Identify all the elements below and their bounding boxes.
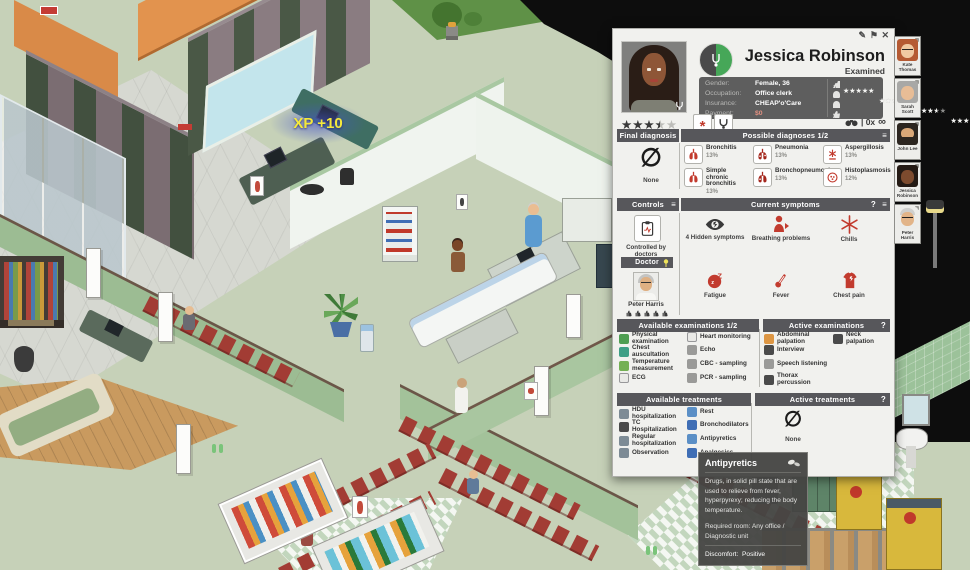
- close-icon[interactable]: ✕: [881, 31, 889, 40]
- glasses-icon: [902, 49, 913, 53]
- treatment-item[interactable]: Bronchodilators: [687, 420, 749, 430]
- header-label: Doctor: [635, 259, 659, 266]
- header-label: Active examinations: [789, 321, 864, 330]
- thumb-up-icon: [662, 310, 669, 317]
- binoculars-icon: [845, 118, 858, 127]
- door: [566, 294, 581, 338]
- edit-icon[interactable]: ✎: [858, 31, 866, 40]
- water-cooler: [360, 324, 374, 352]
- treatment-tooltip: Antipyretics Drugs, in solid pill state …: [698, 452, 808, 566]
- comfort-icon: [833, 91, 840, 98]
- game-viewport[interactable]: XP +10 ✎ ⚑ ✕ Jessica Robinson Examined G…: [0, 0, 970, 570]
- help-icon[interactable]: ?: [871, 200, 876, 209]
- diagnosis-item[interactable]: Bronchopneumonia13%: [753, 168, 821, 187]
- flowers: [448, 22, 456, 27]
- final-diagnosis-none-glyph: ∅: [623, 143, 679, 173]
- door: [176, 424, 191, 474]
- tooltip-discomfort-label: Discomfort:: [705, 551, 738, 558]
- portrait-lips: [650, 79, 658, 82]
- beard: [902, 137, 913, 143]
- clipboard-icon: [639, 220, 656, 237]
- examination-label: Thorax percussion: [777, 373, 830, 387]
- divider: [705, 472, 801, 473]
- speech-bubble-icon: [764, 345, 774, 355]
- rating-stars: ★★★★★★★★★★: [843, 88, 874, 95]
- queue-portrait: [897, 165, 918, 187]
- thorax-icon: [764, 375, 774, 385]
- queue-portrait: [897, 123, 918, 145]
- diagnosis-probability: 13%: [706, 189, 750, 195]
- header-label: Final diagnosis: [620, 131, 677, 140]
- queue-patient-card[interactable]: Peter Harris: [894, 204, 921, 244]
- info-value-payment: $0: [755, 110, 763, 117]
- available-treatments-header: Available treatments: [617, 393, 751, 406]
- pin-icon[interactable]: [663, 259, 669, 267]
- info-value: Female, 36: [755, 80, 790, 87]
- books: [4, 262, 58, 320]
- door: [86, 248, 101, 298]
- fatigue-icon: Zz: [706, 271, 725, 290]
- inhaler-icon: [687, 420, 697, 430]
- examination-label: Chest auscultation: [632, 345, 683, 359]
- syringe-icon: [687, 373, 697, 383]
- list-icon[interactable]: ≡: [882, 131, 887, 140]
- info-value: CHEAP'o'Care: [755, 100, 801, 107]
- diagnosis-item[interactable]: Pneumonia13%: [753, 145, 821, 164]
- queue-face: [901, 86, 914, 100]
- active-examination-item[interactable]: Interview: [764, 345, 830, 355]
- header-label: Controls: [632, 200, 664, 209]
- info-divider: [827, 79, 828, 117]
- diagnosis-item[interactable]: Histoplasmosis12%: [823, 168, 889, 187]
- ecg-monitor-icon: [619, 373, 629, 383]
- breathing-icon: [771, 215, 791, 233]
- mirror: [902, 394, 930, 426]
- controls-mode-label: Controlled by doctors: [615, 244, 677, 258]
- lungs-icon: [684, 168, 703, 187]
- staff-head: [457, 378, 467, 388]
- person-head: [469, 470, 478, 479]
- info-value: Office clerk: [755, 90, 792, 97]
- active-treatments-none-label: None: [763, 436, 823, 443]
- diagnosis-name: Aspergillosis: [845, 145, 884, 152]
- symptom-label: Chest pain: [833, 293, 865, 300]
- planter-flowers: [446, 26, 458, 40]
- street-lamp-head: [926, 200, 944, 213]
- glasses-icon: [902, 217, 913, 221]
- queue-portrait: [897, 39, 918, 61]
- examination-label: ECG: [632, 375, 646, 382]
- header-label: Available treatments: [646, 395, 722, 404]
- treatment-item[interactable]: Observation: [619, 448, 685, 458]
- doctor-portrait[interactable]: [633, 272, 659, 301]
- patient-figure: [448, 240, 468, 276]
- examination-item[interactable]: Chest auscultation: [619, 345, 683, 359]
- portrait-eyes: [647, 68, 651, 71]
- doctor-subheader: Doctor: [621, 257, 673, 268]
- treatment-item[interactable]: Regular hospitalization: [619, 434, 685, 448]
- treatment-label: TC Hospitalization: [632, 420, 685, 434]
- staff-coat: [455, 387, 468, 413]
- thumb-up-icon: [653, 310, 660, 317]
- help-icon[interactable]: ?: [881, 395, 886, 404]
- staff-figure: [454, 378, 470, 414]
- treatment-item[interactable]: Antipyretics: [687, 434, 749, 444]
- queue-patient-card[interactable]: Kate Thomas: [894, 36, 921, 76]
- treatment-item[interactable]: Rest: [687, 407, 749, 417]
- diagnosis-item[interactable]: Aspergillosis13%: [823, 145, 889, 164]
- diagnosis-name: Bronchitis: [706, 145, 737, 152]
- active-examination-item[interactable]: Thorax percussion: [764, 373, 830, 387]
- active-examination-item[interactable]: Neck palpation: [833, 332, 889, 346]
- diagnosis-probability: 12%: [845, 176, 891, 182]
- pills-icon: [787, 458, 801, 468]
- possible-diagnoses-header: Possible diagnoses 1/2 ≡: [681, 129, 890, 142]
- snowflake-icon: [840, 215, 859, 234]
- treatment-label: Observation: [632, 450, 669, 457]
- symptom-label: Fatigue: [704, 293, 726, 300]
- queue-patient-card[interactable]: Jessica Robinson: [894, 162, 921, 202]
- symptom-label: Chills: [841, 237, 858, 244]
- patient-card: ✎ ⚑ ✕ Jessica Robinson Examined Gender: …: [612, 28, 895, 477]
- doctor-glasses: [641, 282, 651, 286]
- thumb-up-icon: [635, 310, 642, 317]
- tooltip-body: Drugs, in solid pill state that are used…: [705, 477, 801, 515]
- doctor-rating-thumbs: [621, 310, 673, 317]
- restroom-floor-sign: [212, 444, 216, 453]
- final-diagnosis-header: Final diagnosis: [617, 129, 679, 142]
- header-label: Available examinations 1/2: [639, 321, 738, 330]
- seated-person: [466, 470, 480, 496]
- treatment-item[interactable]: HDU hospitalization: [619, 407, 685, 421]
- person-torso: [183, 314, 195, 330]
- examination-label: Neck palpation: [846, 332, 889, 346]
- office-chair: [340, 168, 354, 185]
- symptom-item: Fever: [749, 271, 813, 300]
- examination-label: Interview: [777, 347, 804, 354]
- patient-head: [452, 240, 463, 251]
- symptom-item: Chills: [817, 215, 881, 244]
- pills-icon: [687, 448, 697, 458]
- queue-patient-name: Peter Harris: [895, 230, 920, 241]
- section-divider: [679, 213, 680, 315]
- thumb-up-icon: [626, 310, 633, 317]
- list-icon[interactable]: ≡: [882, 200, 887, 209]
- examination-label: PCR - sampling: [700, 375, 747, 382]
- xp-popup: XP +10: [270, 102, 366, 144]
- medicine-cabinet-shelves: [386, 212, 412, 252]
- seated-person: [182, 306, 196, 332]
- active-examination-item[interactable]: Abdominal palpation: [764, 332, 830, 346]
- lungs-icon: [684, 145, 703, 164]
- controls-header: Controls ≡: [617, 198, 679, 211]
- section-divider: [759, 329, 760, 387]
- cabinet-white: [562, 198, 612, 242]
- thumb-up-icon: [644, 310, 651, 317]
- diagnosis-name: Pneumonia: [775, 145, 808, 152]
- tooltip-required-room: Required room: Any office / Diagnostic u…: [705, 522, 801, 541]
- header-label: Current symptoms: [751, 200, 820, 209]
- symptom-item: 4 Hidden symptoms: [683, 217, 747, 242]
- diagnosis-probability: 13%: [775, 153, 808, 159]
- symptom-item: Chest pain: [817, 271, 881, 300]
- hazard-cart: [886, 498, 942, 570]
- rating-stars: ★★★★★★★★★★: [951, 118, 970, 125]
- spores-icon: [823, 168, 842, 187]
- treatment-label: Bronchodilators: [700, 422, 749, 429]
- echo-probe-icon: [687, 345, 697, 355]
- queue-portrait: [897, 81, 918, 103]
- current-symptoms-header: Current symptoms ? ≡: [681, 198, 890, 211]
- queue-face: [901, 170, 914, 184]
- pills-icon: [687, 434, 697, 444]
- examination-item[interactable]: PCR - sampling: [687, 373, 755, 383]
- exit-sign: [178, 124, 192, 130]
- examination-item[interactable]: Temperature measurement: [619, 359, 683, 373]
- doctor-figure: [524, 204, 544, 248]
- queue-portrait: [897, 207, 918, 229]
- trash-bin: [14, 346, 34, 372]
- doctor-scrubs: [525, 215, 542, 247]
- door: [158, 292, 173, 342]
- patient-status: Examined: [845, 66, 885, 76]
- controlled-by-doctors-tile: [634, 215, 661, 242]
- queue-patient-name: Sarah Scott: [895, 104, 920, 115]
- triage-marker-icon: [675, 101, 684, 110]
- tooltip-title: Antipyretics: [705, 458, 757, 468]
- section-divider: [679, 143, 680, 189]
- lungs-infection-icon: [753, 145, 772, 164]
- xp-popup-text: XP +10: [293, 115, 342, 132]
- hazard-label: [850, 486, 862, 498]
- goggles-icon: ∞: [878, 118, 886, 126]
- diagnosis-name: Simple chronic bronchitis: [706, 168, 750, 188]
- thermometer-icon: [772, 271, 790, 290]
- fungus-icon: [823, 145, 842, 164]
- microscope-icon: [687, 359, 697, 369]
- treatment-item[interactable]: TC Hospitalization: [619, 420, 685, 434]
- examination-label: Speech listening: [777, 361, 827, 368]
- final-diagnosis-none-label: None: [623, 177, 679, 184]
- person-torso: [467, 478, 479, 494]
- diagnosis-name: Histoplasmosis: [845, 168, 891, 175]
- observation-counters: | 0x ∞: [845, 117, 886, 127]
- lungs-infection-icon: [753, 168, 772, 187]
- examination-item[interactable]: Echo: [687, 345, 755, 355]
- examination-item[interactable]: Heart monitoring: [687, 332, 755, 342]
- active-treatments-header: Active treatments ?: [755, 393, 890, 406]
- active-treatments-none-glyph: ∅: [763, 407, 823, 432]
- anatomy-poster: [352, 496, 368, 518]
- thermometer-icon: [619, 361, 629, 371]
- treatment-label: Rest: [700, 409, 714, 416]
- neck-palpation-icon: [833, 334, 843, 344]
- examination-label: CBC - sampling: [700, 361, 747, 368]
- examination-item[interactable]: CBC - sampling: [687, 359, 755, 369]
- diagnosis-probability: 13%: [706, 153, 737, 159]
- svg-text:z: z: [711, 280, 714, 286]
- queue-patient-card[interactable]: Sarah Scott: [894, 78, 921, 118]
- doctor-head: [528, 204, 539, 215]
- divider: [705, 545, 801, 546]
- symptom-label: Breathing problems: [752, 236, 810, 243]
- street-lamp-pole: [933, 212, 937, 268]
- queue-patient-name: Jessica Robinson: [895, 188, 920, 199]
- diagnosis-item[interactable]: Bronchitis13%: [684, 145, 750, 164]
- chest-pain-icon: [840, 271, 859, 290]
- palpation-hands-icon: [764, 334, 774, 344]
- queue-patient-name: Kate Thomas: [895, 62, 920, 73]
- stats-icon: [833, 81, 840, 88]
- stethoscope-small-icon: [718, 118, 729, 129]
- satisfaction-thumb-icon: [833, 111, 840, 118]
- portrait-shirt: [631, 100, 677, 112]
- person-head: [185, 306, 194, 315]
- queue-patient-name: John Lee: [895, 146, 920, 151]
- examination-label: Temperature measurement: [632, 359, 683, 373]
- anatomy-poster: [250, 176, 264, 196]
- hospital-bed-icon: [619, 436, 629, 446]
- tooltip-discomfort-value: Positive: [742, 551, 765, 558]
- header-label: Active treatments: [790, 395, 855, 404]
- treatment-label: Regular hospitalization: [632, 434, 685, 448]
- hdu-bed-icon: [619, 409, 629, 419]
- patient-name: Jessica Robinson: [703, 47, 885, 66]
- examination-label: Abdominal palpation: [777, 332, 830, 346]
- heart-monitor-icon: [687, 332, 697, 342]
- queue-patient-card[interactable]: John Lee: [894, 120, 921, 160]
- symptom-label: 4 Hidden symptoms: [686, 235, 745, 242]
- doctor-coat: [636, 293, 656, 300]
- exit-sign: [40, 6, 58, 15]
- stethoscope-icon: [619, 347, 629, 357]
- symptom-label: Fever: [773, 293, 790, 300]
- hand-icon: [619, 334, 629, 344]
- observation-bed-icon: [619, 448, 629, 458]
- diagnosis-item[interactable]: Simple chronic bronchitis13%: [684, 168, 750, 195]
- info-label: Insurance:: [705, 100, 737, 107]
- restroom-floor-sign: [646, 546, 650, 555]
- examination-item[interactable]: Physical examination: [619, 332, 683, 346]
- sink-pedestal: [906, 446, 916, 468]
- floor-hatch: [300, 184, 324, 195]
- reputation-icon: [833, 101, 840, 108]
- info-label: Gender:: [705, 80, 730, 87]
- patient-info-box: Gender: Female, 36 Occupation: Office cl…: [699, 77, 883, 119]
- patient-torso: [451, 252, 465, 272]
- examination-label: Echo: [700, 347, 715, 354]
- doctor-name: Peter Harris: [615, 301, 677, 308]
- pin-icon[interactable]: ⚑: [870, 31, 878, 40]
- tree: [432, 2, 462, 28]
- svg-text:Z: Z: [717, 272, 722, 281]
- examination-item[interactable]: ECG: [619, 373, 683, 383]
- health-poster: [524, 382, 538, 400]
- help-icon[interactable]: ?: [881, 321, 886, 330]
- eye-chart-poster: [456, 194, 468, 210]
- symptom-item: Breathing problems: [749, 215, 813, 243]
- patient-portrait: [621, 41, 687, 113]
- diagnosis-probability: 13%: [845, 153, 884, 159]
- active-examination-item[interactable]: Speech listening: [764, 359, 830, 369]
- listening-icon: [764, 359, 774, 369]
- hidden-eye-icon: [704, 217, 726, 232]
- header-label: Possible diagnoses 1/2: [743, 131, 829, 140]
- observation-count: | 0x: [861, 117, 875, 127]
- symptom-item: Zz Fatigue: [683, 271, 747, 300]
- treatment-label: Antipyretics: [700, 436, 736, 443]
- examination-label: Heart monitoring: [700, 334, 751, 341]
- tc-bed-icon: [619, 422, 629, 432]
- list-icon[interactable]: ≡: [671, 200, 676, 209]
- info-label: Occupation:: [705, 90, 741, 97]
- rest-bed-icon: [687, 407, 697, 417]
